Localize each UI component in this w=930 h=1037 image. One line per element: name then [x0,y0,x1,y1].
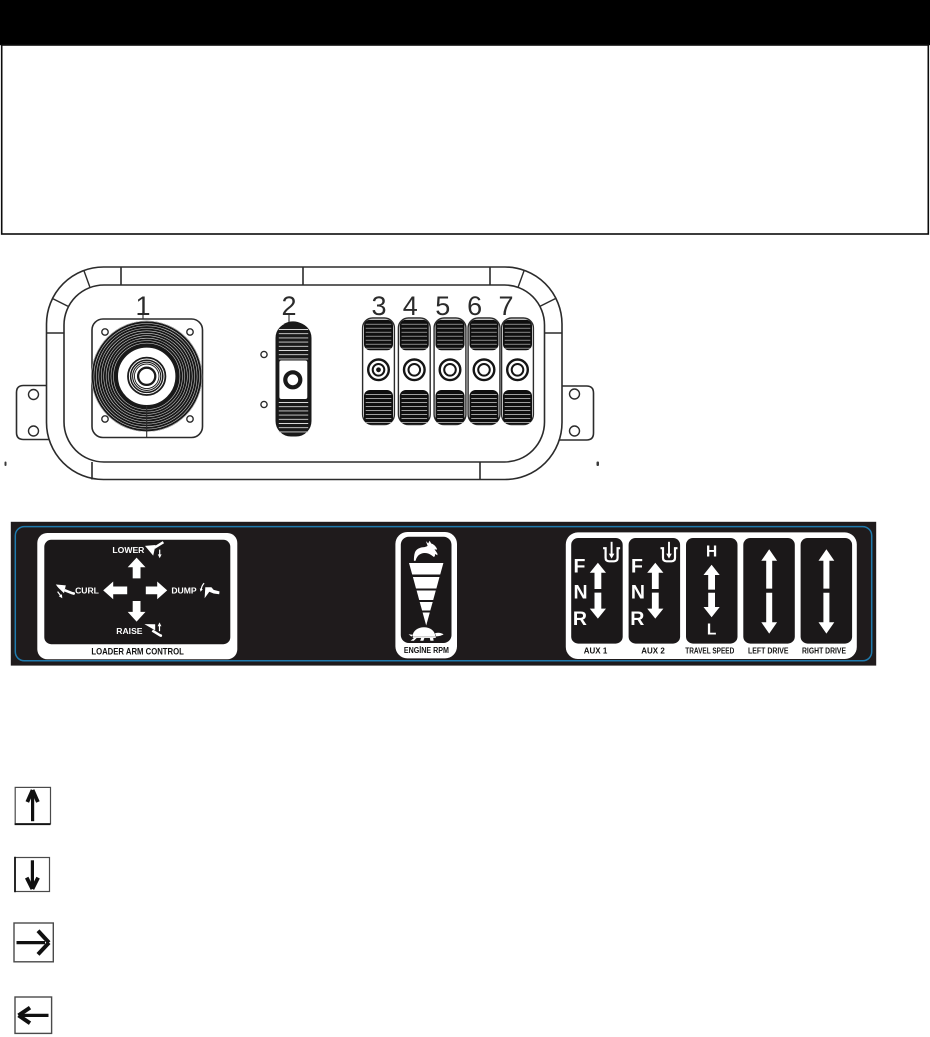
svg-text:ENGİNE RPM: ENGİNE RPM [404,646,449,655]
svg-text:AUX 2: AUX 2 [641,646,665,655]
svg-text:F: F [574,556,586,578]
svg-text:LEFT DRIVE: LEFT DRIVE [748,646,789,655]
svg-text:4: 4 [403,291,418,321]
svg-text:6: 6 [467,291,482,321]
svg-text:RAISE: RAISE [116,626,143,636]
svg-text:R: R [573,608,587,630]
svg-text:L: L [707,622,716,639]
svg-text:AUX 1: AUX 1 [584,646,608,655]
svg-text:F: F [631,556,643,578]
svg-text:RIGHT DRIVE: RIGHT DRIVE [802,646,847,655]
svg-text:LOWER: LOWER [112,545,145,555]
svg-text:DUMP: DUMP [171,585,197,595]
svg-text:LOADER ARM CONTROL: LOADER ARM CONTROL [91,647,184,657]
svg-text:CURL: CURL [75,585,99,595]
svg-text:TRAVEL SPEED: TRAVEL SPEED [685,646,734,655]
svg-text:7: 7 [498,291,513,321]
svg-text:N: N [631,581,645,603]
svg-text:5: 5 [435,291,450,321]
svg-text:R: R [630,608,644,630]
svg-text:N: N [573,581,587,603]
svg-text:H: H [706,544,717,561]
svg-text:3: 3 [371,291,386,321]
